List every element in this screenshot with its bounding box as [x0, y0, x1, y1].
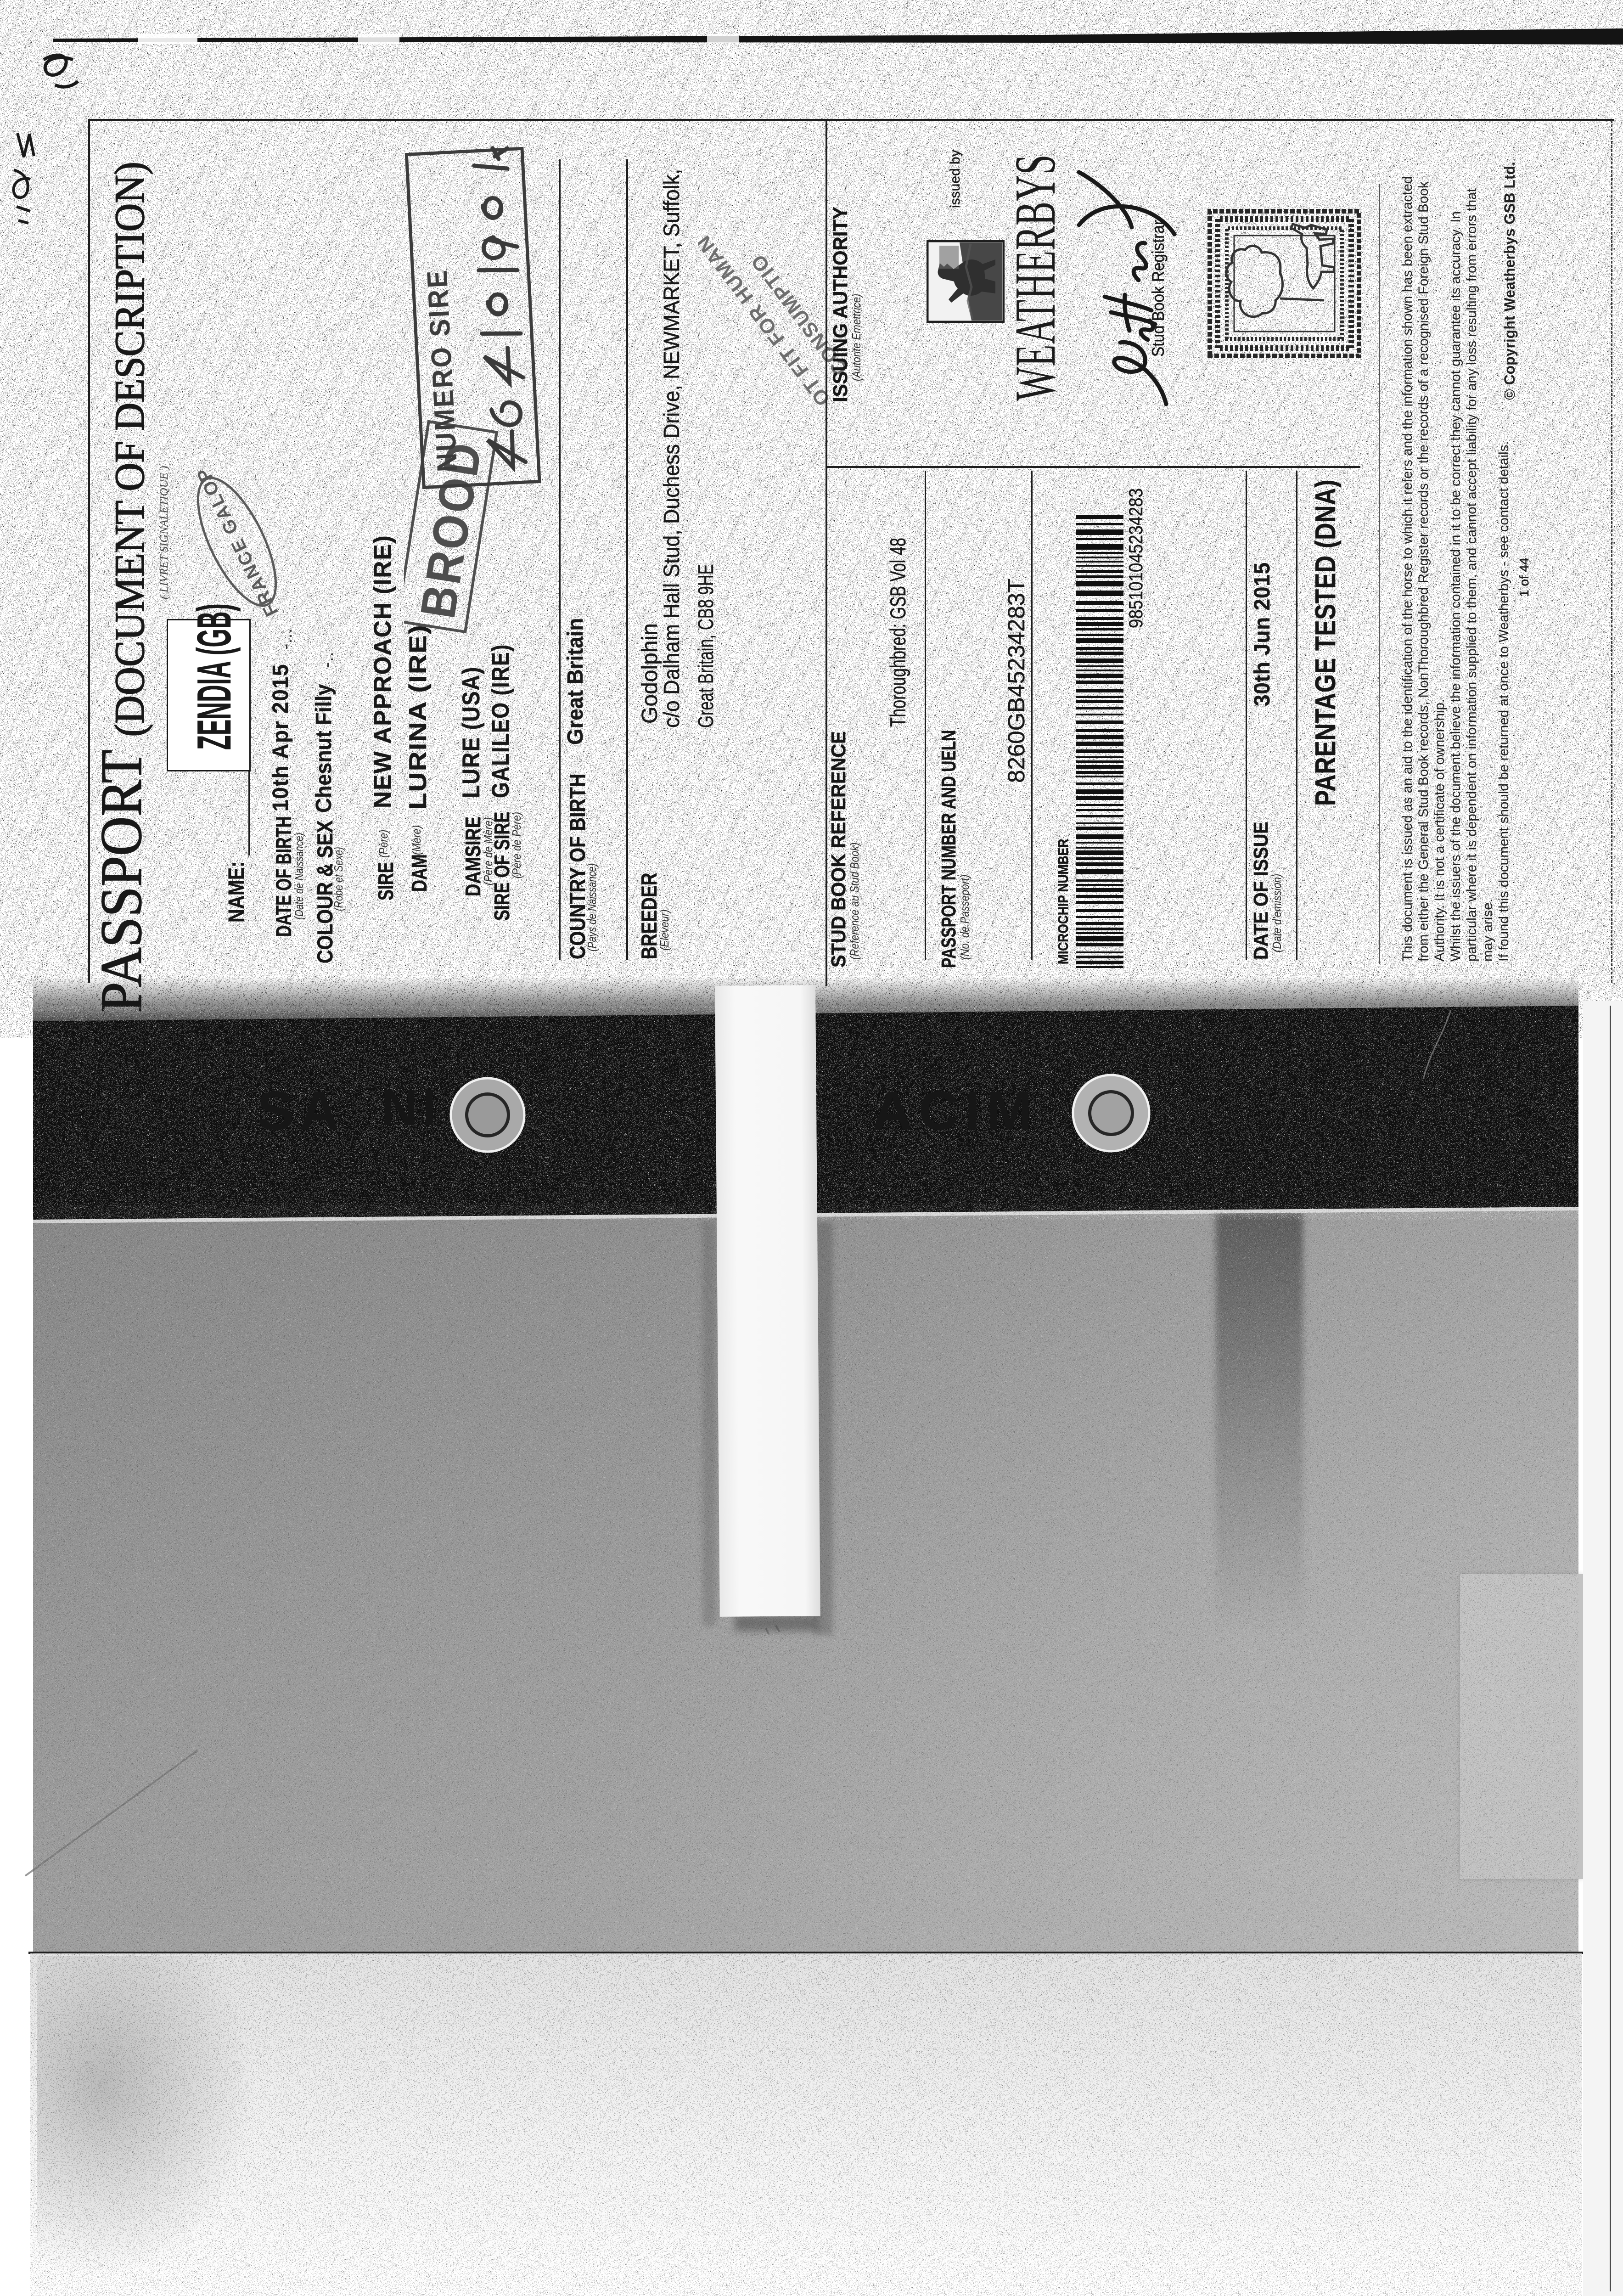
svg-text:NUMERO SIRE: NUMERO SIRE [421, 268, 463, 473]
svg-text:NI: NI [381, 1080, 441, 1136]
svg-text:FRANCE GALOP: FRANCE GALOP [193, 464, 282, 619]
svg-text:ACIM: ACIM [872, 1080, 1039, 1142]
svg-text:SA: SA [257, 1080, 345, 1142]
